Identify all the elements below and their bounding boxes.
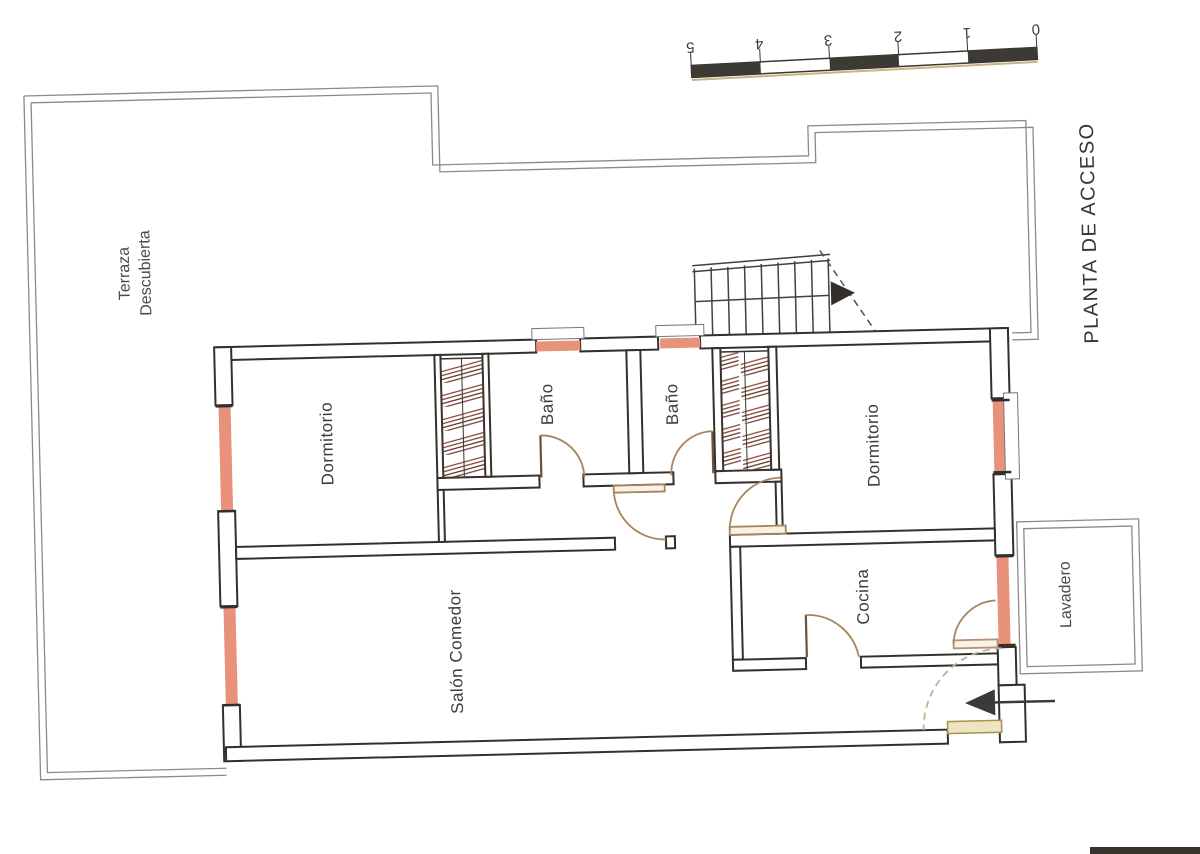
plan-title: PLANTA DE ACCESO — [1076, 122, 1103, 344]
window-cocina — [996, 556, 1010, 645]
scale-number-5: 5 — [686, 38, 695, 55]
scale-number-1: 1 — [962, 24, 971, 41]
window-salon — [223, 607, 237, 705]
room-label-bano-left: Baño — [537, 383, 557, 425]
floor-plan-canvas: 5 4 3 2 1 0 Terraza Descubierta Dormitor… — [0, 0, 1200, 854]
room-label-terraza-line2: Descubierta — [136, 230, 155, 316]
window-dormitorio-left — [219, 406, 234, 511]
scale-number-2: 2 — [893, 27, 902, 44]
door-bano-left — [540, 434, 584, 478]
window-bano-left — [536, 340, 580, 351]
scale-number-4: 4 — [755, 35, 764, 52]
window-dormitorio-right-frame — [1003, 393, 1019, 479]
scanned-floor-plan-page: 5 4 3 2 1 0 Terraza Descubierta Dormitor… — [0, 0, 1200, 854]
window-bano-right — [660, 338, 700, 349]
entry-arrow-head-icon — [965, 689, 996, 716]
lavadero-outline — [1017, 519, 1143, 674]
door-hall-salon — [614, 484, 666, 540]
room-label-bano-right: Baño — [662, 383, 682, 425]
door-cocina-lavadero — [953, 600, 998, 648]
room-label-salon-comedor: Salón Comedor — [445, 589, 467, 714]
door-bano-right — [670, 431, 713, 475]
scale-number-0: 0 — [1031, 20, 1040, 37]
scan-edge-mark — [1090, 847, 1200, 854]
entry-threshold — [947, 720, 1001, 733]
scale-bar: 5 4 3 2 1 0 — [686, 20, 1042, 80]
room-label-terraza-line1: Terraza — [116, 247, 134, 301]
room-label-cocina: Cocina — [853, 568, 873, 624]
room-label-dormitorio-right: Dormitorio — [863, 403, 884, 487]
window-bano-left-frame — [532, 327, 584, 339]
scale-number-3: 3 — [823, 31, 832, 48]
apartment-walls — [214, 328, 1026, 761]
room-label-lavadero: Lavadero — [1057, 561, 1076, 628]
room-label-dormitorio-left: Dormitorio — [316, 402, 337, 486]
window-bano-right-frame — [656, 324, 704, 336]
door-cocina-south — [806, 614, 859, 658]
terrace-outline — [24, 71, 1048, 779]
